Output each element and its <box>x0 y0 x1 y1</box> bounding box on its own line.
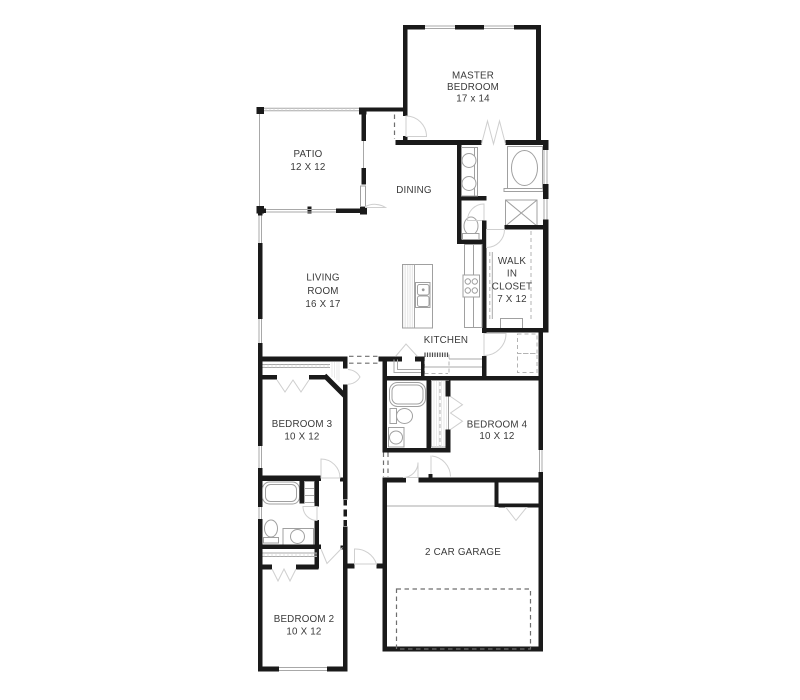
svg-text:LIVING: LIVING <box>306 273 339 284</box>
svg-text:DINING: DINING <box>396 185 432 196</box>
svg-text:16 X 17: 16 X 17 <box>305 299 340 310</box>
svg-text:WALK: WALK <box>498 256 526 267</box>
svg-text:17 x 14: 17 x 14 <box>456 94 490 105</box>
svg-text:2 CAR GARAGE: 2 CAR GARAGE <box>425 547 501 558</box>
svg-text:BEDROOM 2: BEDROOM 2 <box>274 614 335 625</box>
svg-text:CLOSET: CLOSET <box>492 282 532 293</box>
svg-text:ROOM: ROOM <box>307 286 338 297</box>
svg-text:BEDROOM 4: BEDROOM 4 <box>467 420 528 431</box>
svg-text:IN: IN <box>507 269 517 280</box>
svg-text:12 X 12: 12 X 12 <box>290 162 325 173</box>
svg-text:BEDROOM 3: BEDROOM 3 <box>272 419 333 430</box>
svg-text:KITCHEN: KITCHEN <box>424 335 468 346</box>
svg-text:BEDROOM: BEDROOM <box>447 82 499 93</box>
svg-text:10 X 12: 10 X 12 <box>286 627 321 638</box>
svg-text:10 X 12: 10 X 12 <box>284 432 319 443</box>
svg-text:PATIO: PATIO <box>294 149 323 160</box>
svg-text:10 X 12: 10 X 12 <box>479 431 514 442</box>
svg-text:7 X 12: 7 X 12 <box>497 294 527 305</box>
svg-text:MASTER: MASTER <box>452 71 494 82</box>
